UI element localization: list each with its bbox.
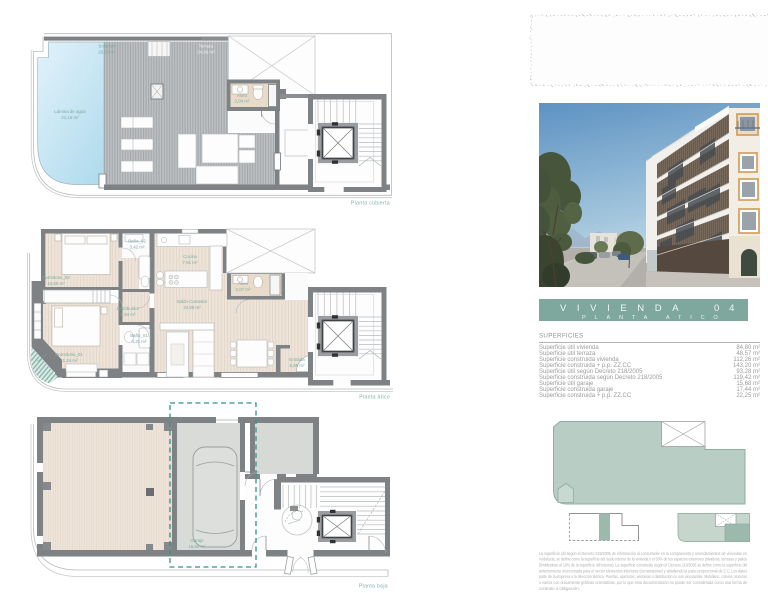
svg-text:Lámina de agua: Lámina de agua — [54, 109, 86, 114]
svg-text:Cocina: Cocina — [183, 254, 197, 259]
svg-text:VIVIENDA: VIVIENDA — [560, 303, 689, 314]
svg-text:24,86 m²: 24,86 m² — [197, 50, 215, 55]
svg-text:Entrada: Entrada — [289, 357, 305, 362]
svg-text:15,60 m²: 15,60 m² — [188, 544, 206, 549]
svg-text:7,91 m²: 7,91 m² — [183, 260, 198, 265]
svg-text:2,04 m²: 2,04 m² — [235, 99, 250, 104]
svg-text:Baño_02: Baño_02 — [128, 239, 146, 244]
svg-text:12,56 m²: 12,56 m² — [47, 281, 65, 286]
svg-text:PLANTA ATICO: PLANTA ATICO — [582, 315, 727, 321]
svg-text:Dormitorio_01: Dormitorio_01 — [55, 352, 83, 357]
svg-text:parte de la empresa o la direc: parte de la empresa o la dirección técni… — [539, 574, 747, 579]
svg-text:Planta baja: Planta baja — [359, 584, 388, 590]
svg-text:Planta ático: Planta ático — [359, 395, 390, 401]
svg-text:o varios con únicamente gráfic: o varios con únicamente gráficas orienta… — [539, 580, 748, 585]
svg-text:Aseo: Aseo — [238, 281, 249, 286]
svg-text:24,99 m²: 24,99 m² — [183, 305, 201, 310]
svg-text:contrato u obligación.: contrato u obligación. — [539, 586, 580, 591]
svg-text:2,07 m²: 2,07 m² — [236, 287, 251, 292]
svg-text:anteriormente mencionada para: anteriormente mencionada para el sector … — [539, 568, 747, 573]
svg-text:Planta cubierta: Planta cubierta — [351, 201, 390, 207]
svg-text:Andalucía, se define como la s: Andalucía, se define como la superficie … — [539, 557, 747, 562]
svg-text:(limitándose al 10% de la supe: (limitándose al 10% de la superficie úti… — [539, 563, 747, 568]
svg-text:3,31 m²: 3,31 m² — [132, 339, 147, 344]
svg-text:3,42 m²: 3,42 m² — [130, 245, 145, 250]
svg-text:SUPERFICIES: SUPERFICIES — [539, 333, 584, 340]
svg-text:Aseo: Aseo — [237, 93, 248, 98]
svg-text:20,61 m²: 20,61 m² — [98, 50, 116, 55]
svg-text:Solárium: Solárium — [98, 44, 116, 49]
svg-text:Baño_01: Baño_01 — [130, 333, 148, 338]
svg-text:21,16 m²: 21,16 m² — [61, 115, 79, 120]
svg-text:5,68 m²: 5,68 m² — [290, 363, 305, 368]
svg-text:Garaje: Garaje — [190, 538, 204, 543]
svg-text:04: 04 — [714, 303, 744, 314]
svg-text:Distribuidor: Distribuidor — [117, 306, 140, 311]
svg-text:La superficie útil según el De: La superficie útil según el Decreto 218/… — [539, 551, 748, 556]
svg-text:Terraza: Terraza — [199, 44, 214, 49]
svg-text:1,84 m²: 1,84 m² — [121, 312, 136, 317]
svg-text:Superficie construida + p.p. Z: Superficie construida + p.p. ZZ.CC — [539, 393, 632, 399]
svg-text:11,24 m²: 11,24 m² — [60, 358, 78, 363]
svg-text:Salón-Comedor: Salón-Comedor — [177, 299, 208, 304]
svg-text:22,25 m²: 22,25 m² — [736, 393, 760, 399]
svg-text:Dormitorio_02: Dormitorio_02 — [42, 275, 70, 280]
